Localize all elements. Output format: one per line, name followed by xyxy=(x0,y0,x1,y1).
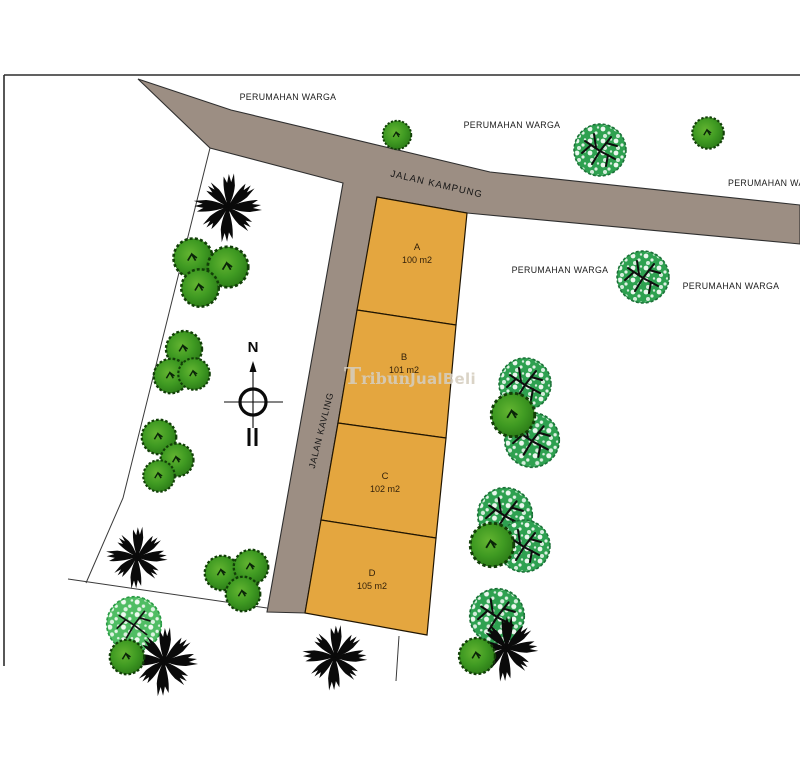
site-plan-canvas: A 100 m2 B 101 m2 C 102 m2 D 105 m2 JALA… xyxy=(0,0,800,759)
compass: N xyxy=(224,339,283,446)
plot-B-id: B xyxy=(401,352,407,363)
bush-icon xyxy=(470,523,514,567)
area-label-perumahan-warga-upper-right: PERUMAHAN WARGA xyxy=(464,120,561,130)
plot-C-area: 102 m2 xyxy=(370,484,400,494)
tree-icon xyxy=(574,124,626,176)
palm-tree-icon xyxy=(302,624,368,691)
compass-base-bar-left xyxy=(248,428,251,446)
bush-icon xyxy=(459,638,495,674)
bush-icon xyxy=(226,577,261,612)
bush-icon xyxy=(110,640,145,675)
area-label-perumahan-warga-mid-left: PERUMAHAN WARGA xyxy=(512,265,609,275)
plot-A-id: A xyxy=(414,242,421,253)
bush-icon xyxy=(383,121,412,150)
area-label-perumahan-warga-top: PERUMAHAN WARGA xyxy=(240,92,337,102)
plot-A-area: 100 m2 xyxy=(402,255,432,265)
plot-D-area: 105 m2 xyxy=(357,581,387,591)
road-surface xyxy=(138,79,800,613)
area-label-perumahan-warga-mid-right: PERUMAHAN WARGA xyxy=(683,281,780,291)
plot-C-id: C xyxy=(382,471,389,482)
compass-base-bar-right xyxy=(255,428,258,446)
area-label-perumahan-warga-right-truncated: PERUMAHAN WARGA xyxy=(728,178,800,188)
bush-icon xyxy=(491,393,535,437)
compass-north-label: N xyxy=(248,339,259,356)
bush-icon xyxy=(692,117,724,149)
plot-D-id: D xyxy=(369,568,376,579)
bush-icon xyxy=(143,460,175,492)
compass-arrowhead-icon xyxy=(250,361,257,372)
palm-tree-icon xyxy=(105,526,167,590)
bush-icon xyxy=(181,269,219,307)
parcel-boundary-south xyxy=(396,636,399,681)
tree-icon xyxy=(617,251,669,303)
bush-icon xyxy=(178,358,210,390)
palm-tree-icon xyxy=(193,173,262,244)
